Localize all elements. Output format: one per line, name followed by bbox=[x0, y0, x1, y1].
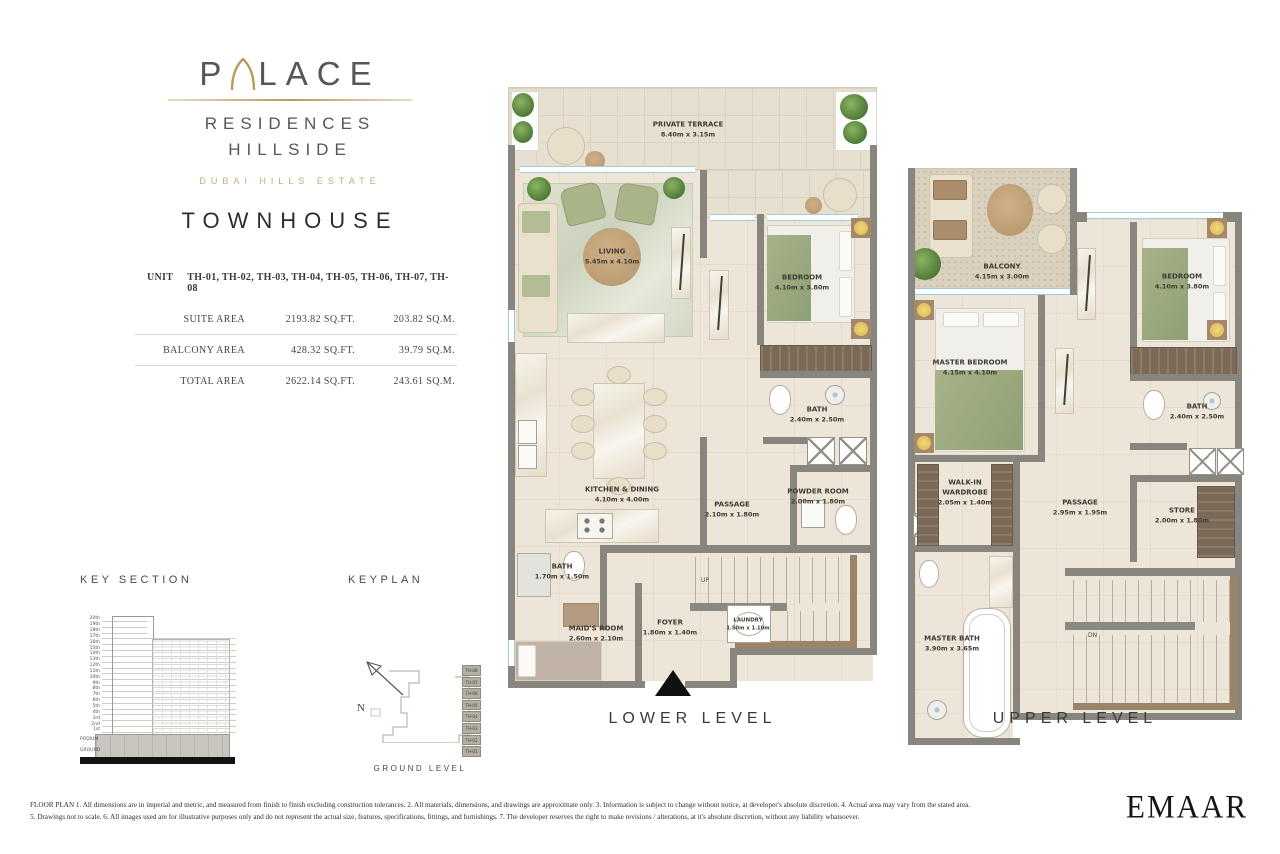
wardrobe bbox=[1130, 347, 1237, 376]
dining-chair bbox=[643, 442, 667, 460]
floor-label: 1st bbox=[78, 728, 100, 733]
shaft-box bbox=[1217, 448, 1244, 475]
wall bbox=[1130, 475, 1242, 482]
room-label-masterbath: MASTER BATH3.90m x 3.65m bbox=[924, 635, 980, 654]
table-row: SUITE AREA 2193.82 SQ.FT. 203.82 SQ.M. bbox=[135, 304, 457, 334]
emaar-logo: EMAAR bbox=[1126, 788, 1248, 826]
wall bbox=[760, 371, 877, 378]
console-table bbox=[1055, 348, 1074, 414]
wardrobe bbox=[760, 345, 872, 373]
wall bbox=[1130, 482, 1137, 562]
keyplan-units: TH-08 TH-07 TH-06 TH-05 TH-04 TH-03 TH-0… bbox=[462, 665, 481, 758]
unit-box: TH-04 bbox=[462, 711, 481, 722]
tower-outline bbox=[112, 616, 154, 736]
vanity bbox=[989, 556, 1013, 608]
wall bbox=[1130, 222, 1137, 347]
wall bbox=[1130, 374, 1242, 381]
wall bbox=[1130, 443, 1187, 450]
lamp-icon bbox=[851, 218, 871, 238]
stairs bbox=[1073, 635, 1230, 705]
bed-blanket bbox=[935, 370, 1023, 450]
window bbox=[508, 640, 515, 666]
window bbox=[520, 166, 695, 173]
wardrobe bbox=[917, 464, 939, 546]
row-sqm: 243.61 SQ.M. bbox=[355, 376, 455, 387]
lamp-icon bbox=[914, 433, 934, 453]
unit-box: TH-03 bbox=[462, 723, 481, 734]
sink bbox=[518, 445, 537, 469]
dining-chair bbox=[607, 366, 631, 384]
rug bbox=[563, 603, 599, 627]
stairs bbox=[1073, 580, 1230, 622]
stairs bbox=[695, 557, 850, 603]
terrace-chair bbox=[547, 127, 585, 165]
floor-label: GROUND bbox=[80, 748, 100, 753]
cushion bbox=[522, 275, 550, 297]
brand-estate: DUBAI HILLS ESTATE bbox=[150, 176, 430, 186]
room-label-terrace: PRIVATE TERRACE8.40m x 3.15m bbox=[653, 121, 724, 140]
room-label-wardrobe: WALK-IN WARDROBE2.05m x 1.40m bbox=[937, 479, 993, 508]
row-label: TOTAL AREA bbox=[135, 376, 245, 387]
key-section-title: KEY SECTION bbox=[80, 574, 192, 586]
terrace-chair bbox=[823, 178, 857, 212]
room-label-maids: MAID'S ROOM2.60m x 2.10m bbox=[569, 625, 624, 644]
wall bbox=[508, 681, 645, 688]
room-label-passage: PASSAGE2.10m x 1.80m bbox=[705, 501, 759, 520]
wall bbox=[1038, 295, 1045, 462]
row-sqft: 2193.82 SQ.FT. bbox=[245, 314, 355, 325]
disclaimer-line2: 5. Drawings not to scale. 6. All images … bbox=[30, 811, 1120, 823]
pillow bbox=[1213, 246, 1226, 286]
room-label-living: LIVING5.45m x 4.10m bbox=[585, 248, 639, 267]
floor-label: 12th bbox=[78, 664, 100, 669]
dining-chair bbox=[643, 415, 667, 433]
wall bbox=[1070, 168, 1077, 295]
lower-level-title: LOWER LEVEL bbox=[505, 710, 880, 728]
unit-box: TH-08 bbox=[462, 665, 481, 676]
unit-box: TH-01 bbox=[462, 746, 481, 757]
unit-box: TH-06 bbox=[462, 688, 481, 699]
tower-grid bbox=[152, 639, 230, 736]
wall bbox=[508, 145, 515, 688]
unit-values: TH-01, TH-02, TH-03, TH-04, TH-05, TH-06… bbox=[187, 272, 457, 294]
podium-band: PODIUM GROUND bbox=[95, 734, 230, 758]
shaft-box bbox=[839, 437, 867, 465]
arch-icon bbox=[230, 58, 256, 90]
brand-line1: RESIDENCES bbox=[150, 111, 430, 137]
pillow bbox=[983, 312, 1019, 327]
disclaimer: FLOOR PLAN 1. All dimensions are in impe… bbox=[30, 799, 1120, 823]
wall bbox=[790, 472, 797, 545]
bed-blanket bbox=[1142, 248, 1188, 340]
stairs bbox=[787, 611, 850, 645]
lamp-icon bbox=[1207, 320, 1227, 340]
pillow bbox=[518, 645, 536, 677]
brand-logo: P LACE RESIDENCES HILLSIDE DUBAI HILLS E… bbox=[150, 55, 430, 234]
toilet-icon bbox=[1143, 390, 1165, 420]
wardrobe bbox=[991, 464, 1013, 546]
console-table bbox=[671, 227, 691, 299]
toilet-icon bbox=[919, 560, 939, 588]
logo-text: P bbox=[199, 55, 230, 93]
wall bbox=[908, 168, 915, 738]
lamp-icon bbox=[914, 300, 934, 320]
plant-icon bbox=[843, 121, 867, 144]
window bbox=[915, 288, 1070, 295]
sink bbox=[518, 420, 537, 444]
upper-level-title: UPPER LEVEL bbox=[905, 710, 1245, 728]
floor-label: 5th bbox=[78, 705, 100, 710]
room-label-balcony: BALCONY4.15m x 3.00m bbox=[975, 263, 1029, 282]
room-label-store: STORE2.00m x 1.80m bbox=[1155, 507, 1209, 526]
dining-table bbox=[593, 383, 645, 479]
shaft-box bbox=[1189, 448, 1216, 475]
wood-rail bbox=[1073, 703, 1237, 710]
keyplan-diagram: N TH-08 TH-07 TH-06 TH-05 TH-04 TH-03 TH… bbox=[345, 610, 495, 770]
unit-box: TH-07 bbox=[462, 677, 481, 688]
wall bbox=[1065, 568, 1242, 576]
wall bbox=[870, 145, 877, 648]
wall bbox=[635, 583, 642, 681]
keyplan-title: KEYPLAN bbox=[348, 574, 423, 586]
cushion bbox=[933, 220, 967, 240]
shower-icon bbox=[825, 385, 845, 405]
balcony-chair bbox=[1037, 224, 1067, 254]
floor-plan-page: P LACE RESIDENCES HILLSIDE DUBAI HILLS E… bbox=[0, 0, 1280, 854]
room-label-passage: PASSAGE2.95m x 1.95m bbox=[1053, 499, 1107, 518]
floor-label: 11th bbox=[78, 670, 100, 675]
room-label-bath2: BATH1.70m x 1.50m bbox=[535, 563, 589, 582]
plant-icon bbox=[663, 177, 685, 199]
floor-label: 10th bbox=[78, 676, 100, 681]
room-label-master: MASTER BEDROOM4.15m x 4.10m bbox=[933, 359, 1008, 378]
wall bbox=[1013, 462, 1020, 552]
unit-table: UNIT TH-01, TH-02, TH-03, TH-04, TH-05, … bbox=[135, 268, 457, 396]
logo-text-end: LACE bbox=[258, 55, 380, 93]
pillow bbox=[943, 312, 979, 327]
wall bbox=[908, 738, 1020, 745]
room-label-foyer: FOYER1.80m x 1.40m bbox=[643, 619, 697, 638]
room-label-bath: BATH2.40m x 2.50m bbox=[790, 406, 844, 425]
floor-label: PODIUM bbox=[80, 737, 98, 742]
floor-label: 17th bbox=[78, 635, 100, 640]
dining-chair bbox=[571, 388, 595, 406]
lamp-icon bbox=[1207, 218, 1227, 238]
lamp-icon bbox=[851, 319, 871, 339]
window bbox=[710, 214, 755, 221]
row-sqm: 203.82 SQ.M. bbox=[355, 314, 455, 325]
unit-box: TH-02 bbox=[462, 735, 481, 746]
stair-rail bbox=[1065, 622, 1195, 630]
room-label-powder: POWDER ROOM2.00m x 1.80m bbox=[787, 488, 848, 507]
wall bbox=[700, 170, 707, 258]
wall bbox=[600, 545, 607, 630]
brand-line2: HILLSIDE bbox=[150, 137, 430, 163]
wall bbox=[757, 214, 764, 345]
unit-label: UNIT bbox=[147, 272, 173, 294]
room-label-bath: BATH2.40m x 2.50m bbox=[1170, 403, 1224, 422]
coffee-table bbox=[567, 313, 665, 343]
wood-rail bbox=[850, 555, 857, 648]
wall bbox=[1013, 552, 1020, 720]
console-table bbox=[1077, 248, 1096, 320]
floor-label: 3rd bbox=[78, 717, 100, 722]
disclaimer-line1: FLOOR PLAN 1. All dimensions are in impe… bbox=[30, 799, 1120, 811]
plant-icon bbox=[512, 93, 534, 117]
wall bbox=[908, 455, 1045, 462]
row-label: SUITE AREA bbox=[135, 314, 245, 325]
wall bbox=[790, 465, 877, 472]
north-label: N bbox=[357, 702, 365, 714]
plant-icon bbox=[527, 177, 551, 201]
cushion bbox=[522, 211, 550, 233]
plant-icon bbox=[840, 94, 868, 120]
row-sqft: 2622.14 SQ.FT. bbox=[245, 376, 355, 387]
entrance-marker-icon bbox=[655, 670, 691, 696]
wood-rail bbox=[1230, 576, 1237, 710]
window bbox=[767, 214, 857, 221]
dining-chair bbox=[643, 388, 667, 406]
stairs-up-label: UP bbox=[701, 577, 709, 584]
dining-chair bbox=[571, 415, 595, 433]
floor-label: 4th bbox=[78, 711, 100, 716]
window bbox=[1087, 212, 1225, 219]
keyplan-caption: GROUND LEVEL bbox=[345, 764, 495, 773]
lower-level-plan: UP PRIVATE TERRACE8.40m x 3.15m LIVING5.… bbox=[505, 85, 880, 697]
floor-label: 6th bbox=[78, 699, 100, 704]
unit-box: TH-05 bbox=[462, 700, 481, 711]
wall bbox=[700, 437, 707, 545]
window bbox=[508, 310, 515, 342]
shaft-box bbox=[807, 437, 835, 465]
armchair bbox=[614, 182, 660, 226]
floor-label: 19th bbox=[78, 623, 100, 628]
key-section-diagram: 20th 19th 18th 17th 16th 15th 14th 13th … bbox=[78, 616, 236, 766]
toilet-icon bbox=[835, 505, 857, 535]
room-label-bedroom: BEDROOM4.10m x 3.80m bbox=[1155, 273, 1209, 292]
wall bbox=[607, 545, 877, 553]
row-sqft: 428.32 SQ.FT. bbox=[245, 345, 355, 356]
ground-bar bbox=[80, 757, 235, 764]
wall bbox=[730, 648, 737, 688]
pillow bbox=[839, 277, 852, 317]
gold-divider bbox=[168, 99, 412, 101]
console-table bbox=[709, 270, 729, 340]
row-sqm: 39.79 SQ.M. bbox=[355, 345, 455, 356]
page-title: TOWNHOUSE bbox=[150, 208, 430, 234]
table-row: BALCONY AREA 428.32 SQ.FT. 39.79 SQ.M. bbox=[135, 334, 457, 365]
wall bbox=[763, 437, 809, 444]
room-label-kitchen: KITCHEN & DINING4.10m x 4.00m bbox=[585, 486, 659, 505]
balcony-chair bbox=[1037, 184, 1067, 214]
room-label-laundry: LAUNDRY1.50m x 1.10m bbox=[726, 618, 769, 633]
plant-icon bbox=[513, 121, 533, 143]
unit-table-header: UNIT TH-01, TH-02, TH-03, TH-04, TH-05, … bbox=[135, 268, 457, 304]
room-label-bedroom: BEDROOM4.10m x 3.80m bbox=[775, 274, 829, 293]
balcony-table bbox=[987, 184, 1033, 236]
upper-level-plan: DN BALCONY4.15m x 3.00m BEDROOM4.10m x 3… bbox=[905, 160, 1245, 745]
stove bbox=[577, 513, 613, 539]
wall bbox=[1077, 212, 1087, 222]
palace-wordmark: P LACE bbox=[150, 55, 430, 93]
wall bbox=[908, 545, 1020, 552]
wall bbox=[730, 648, 877, 655]
floor-label: 16th bbox=[78, 641, 100, 646]
terrace-side-table bbox=[805, 197, 822, 214]
cushion bbox=[933, 180, 967, 200]
dining-chair bbox=[571, 442, 595, 460]
row-label: BALCONY AREA bbox=[135, 345, 245, 356]
floor-label: 18th bbox=[78, 629, 100, 634]
stairs-dn-label: DN bbox=[1088, 632, 1097, 639]
toilet-icon bbox=[769, 385, 791, 415]
table-row: TOTAL AREA 2622.14 SQ.FT. 243.61 SQ.M. bbox=[135, 365, 457, 396]
